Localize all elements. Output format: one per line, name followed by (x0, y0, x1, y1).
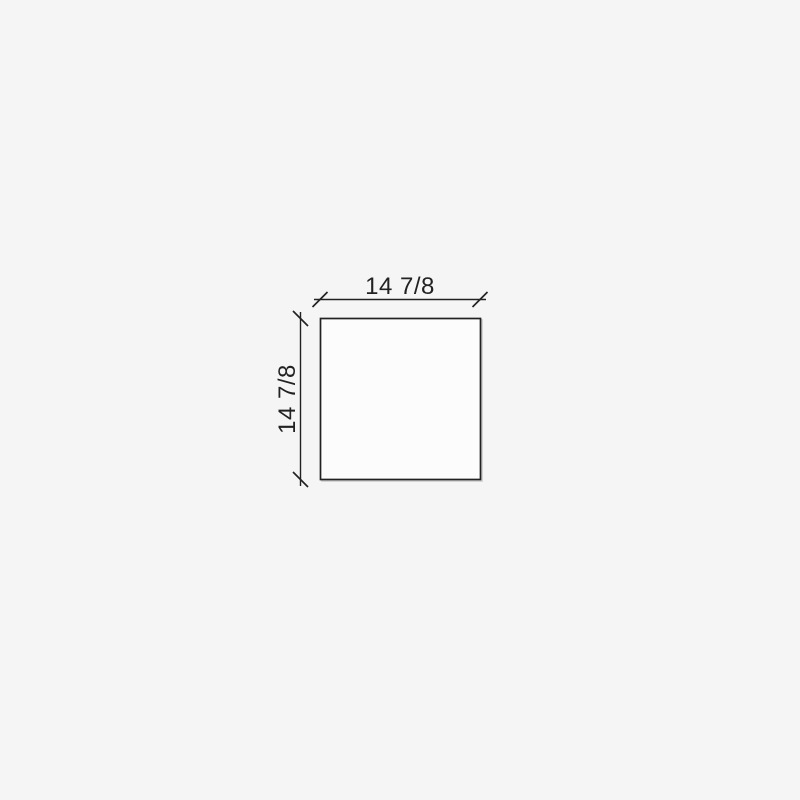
panel-outline (321, 319, 481, 480)
height-dimension: 14 7/8 (274, 311, 308, 487)
height-dimension-label: 14 7/8 (274, 364, 301, 434)
width-dimension: 14 7/8 (313, 273, 488, 307)
width-dimension-label: 14 7/8 (365, 273, 435, 300)
drawing-canvas: 14 7/8 14 7/8 (0, 0, 800, 800)
dimension-drawing: 14 7/8 14 7/8 (0, 0, 800, 800)
